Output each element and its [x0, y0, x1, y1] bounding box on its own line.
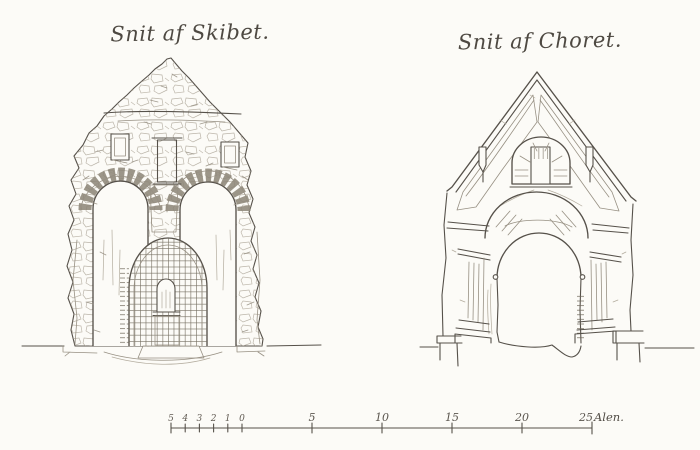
- scale-major-label-10: 10: [375, 411, 389, 424]
- choir-plinth-left: [437, 336, 462, 366]
- nave-figure: [22, 58, 321, 364]
- choir-impost-right: [590, 252, 621, 262]
- choir-wall-right: [630, 204, 633, 331]
- scale-minor-label-5: 5: [168, 414, 174, 424]
- scale-minor-label-2: 2: [210, 414, 217, 424]
- engraving-page: 5 4 3 2 1 0 5 10 15 20 25 Alen. Snit af …: [0, 0, 700, 450]
- apse-platform: [138, 346, 204, 358]
- scale-minor-label-4: 4: [181, 414, 188, 424]
- jamb-shading-left: [488, 284, 492, 334]
- choir-cornice-right: [592, 224, 629, 233]
- reveal-hatch-left: [468, 258, 484, 330]
- floor-sweep-1: [104, 352, 222, 360]
- apse-edge-ladder: [120, 268, 129, 344]
- scale-minor-label-0: 0: [239, 414, 245, 424]
- gable-window-hatch: [532, 148, 549, 159]
- choir-wall-left: [442, 193, 447, 336]
- impost-knob-right: [580, 275, 585, 280]
- choir-vault-arch: [485, 192, 588, 238]
- church-sections-drawing: 5 4 3 2 1 0 5 10 15 20 25 Alen. Snit af …: [0, 0, 700, 450]
- choir-pier-base-left: [455, 320, 491, 343]
- right-figure-title: Snit af Choret.: [458, 28, 622, 55]
- vault-diagonal-hatch: [496, 211, 576, 235]
- choir-texture-strokes: [452, 95, 626, 302]
- choir-plinth-right: [613, 331, 644, 362]
- ground-line-right: [267, 345, 321, 346]
- choir-gable-window: [510, 137, 572, 187]
- scale-major-label-15: 15: [445, 411, 459, 424]
- vault-soffit-contour: [505, 220, 572, 227]
- impost-knob-left: [493, 275, 498, 280]
- nave-right-slit-window: [221, 142, 239, 170]
- scale-major-label-25: 25: [578, 411, 593, 424]
- foundation-marks: [63, 346, 265, 356]
- chancel-arch: [497, 233, 581, 278]
- scale-unit-label: Alen.: [593, 410, 624, 424]
- scale-major-label-20: 20: [514, 411, 529, 424]
- left-figure-title: Snit af Skibet.: [110, 20, 269, 47]
- choir-floor-line: [499, 342, 581, 357]
- scale-bar: 5 4 3 2 1 0 5 10 15 20 25 Alen.: [168, 410, 624, 434]
- putlog-slit-right: [586, 147, 593, 182]
- nave-left-slit-window: [111, 134, 129, 163]
- scale-minor-label-3: 3: [197, 414, 203, 424]
- choir-impost-left: [458, 249, 490, 260]
- choir-cornice-left: [447, 222, 489, 231]
- scale-minor-label-1: 1: [225, 414, 231, 424]
- choir-figure: [420, 72, 694, 366]
- scale-major-label-5: 5: [309, 411, 316, 424]
- chancel-jamb-left: [497, 278, 499, 342]
